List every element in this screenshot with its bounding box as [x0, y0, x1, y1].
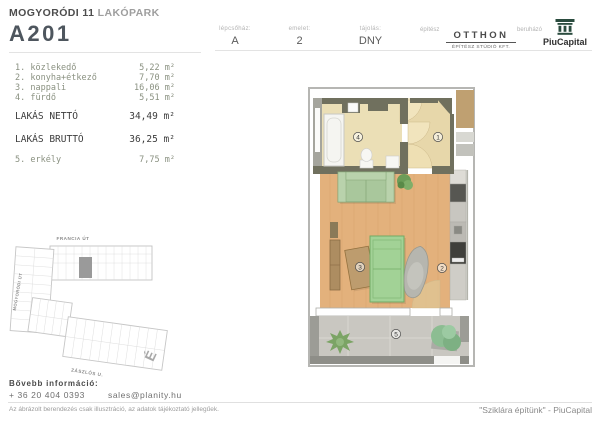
net-area-row: LAKÁS NETTÓ 34,49 m² — [15, 111, 175, 122]
net-area-value: 34,49 m² — [129, 111, 175, 122]
architect-logo-sub: ÉPÍTÉSZ STÚDIÓ KFT. — [446, 45, 516, 50]
gross-area-value: 36,25 m² — [129, 134, 175, 145]
room-name: 4. fürdő — [15, 93, 56, 103]
info-label: Bővebb információ: — [9, 379, 99, 388]
tall-wardrobe — [330, 240, 340, 290]
highlighted-unit — [79, 257, 92, 278]
staircase-label: lépcsőház: — [205, 26, 265, 32]
room-name: 5. erkély — [15, 155, 61, 165]
room-area: 5,51 m² — [139, 93, 175, 103]
room-name: 3. nappali — [15, 83, 66, 93]
bathtub — [324, 114, 344, 166]
room-list: 1. közlekedő 5,22 m² 2. konyha+étkező 7,… — [15, 63, 175, 103]
room-label-kitchen: 2 — [440, 265, 444, 272]
room-area: 5,22 m² — [139, 63, 175, 73]
disclaimer-text: Az ábrázolt berendezés csak illusztráció… — [9, 406, 219, 413]
architect-logo-name: OTTHON — [446, 30, 516, 43]
room-row: 1. közlekedő 5,22 m² — [15, 63, 175, 73]
meta-facing: tájolás: DNY — [338, 26, 403, 47]
sink — [386, 156, 399, 168]
site-building-north — [50, 246, 152, 280]
facing-value: DNY — [338, 35, 403, 47]
datasheet-page: MOGYORÓDI 11 LAKÓPARK A201 lépcsőház: A … — [0, 0, 600, 424]
area-totals: LAKÁS NETTÓ 34,49 m² LAKÁS BRUTTÓ 36,25 … — [15, 111, 175, 145]
email-address: sales@planity.hu — [108, 390, 182, 400]
contact-line: + 36 20 404 0393 sales@planity.hu — [9, 390, 182, 400]
net-area-label: LAKÁS NETTÓ — [15, 111, 78, 122]
meta-staircase: lépcsőház: A — [205, 26, 265, 47]
column-icon — [536, 19, 594, 36]
room-name: 2. konyha+étkező — [15, 73, 97, 83]
phone-number: + 36 20 404 0393 — [9, 390, 85, 400]
floor-plan-drawing: 1 2 3 4 5 — [302, 86, 478, 375]
room-area: 7,70 m² — [139, 73, 175, 83]
street-top-label: FRANCIA ÚT — [57, 235, 90, 241]
balcony-row: 5. erkély 7,75 m² — [15, 155, 175, 165]
architect-label: építész — [420, 27, 439, 33]
unit-id: A201 — [9, 21, 72, 47]
kitchen-counter — [450, 170, 466, 300]
toilet — [360, 149, 373, 169]
room-row: 4. fürdő 5,51 m² — [15, 93, 175, 103]
bed — [370, 236, 406, 304]
architect-logo: OTTHON ÉPÍTÉSZ STÚDIÓ KFT. — [446, 30, 516, 50]
facing-label: tájolás: — [338, 26, 403, 32]
floor-value: 2 — [272, 35, 327, 47]
staircase-value: A — [205, 35, 265, 47]
adjacent-structures — [456, 90, 474, 156]
project-name: MOGYORÓDI 11 — [9, 7, 94, 19]
media-cabinet — [330, 222, 338, 238]
room-row: 2. konyha+étkező 7,70 m² — [15, 73, 175, 83]
street-bottom-label: ZÁSZLÓS U. — [71, 366, 104, 378]
project-title: MOGYORÓDI 11 LAKÓPARK — [9, 7, 160, 19]
room-label-balcony: 5 — [394, 331, 398, 338]
floor-label: emelet: — [272, 26, 327, 32]
room-row: 3. nappali 16,06 m² — [15, 83, 175, 93]
sofa — [338, 172, 396, 204]
header-divider-left — [9, 52, 201, 53]
gross-area-row: LAKÁS BRUTTÓ 36,25 m² — [15, 134, 175, 145]
room-label-hall: 1 — [436, 134, 440, 141]
gross-area-label: LAKÁS BRUTTÓ — [15, 134, 84, 145]
company-slogan: "Sziklára építünk" - PiuCapital — [479, 405, 592, 415]
footer-divider — [8, 402, 592, 403]
header-divider-right — [215, 50, 592, 51]
room-label-living: 3 — [358, 264, 362, 271]
room-name: 1. közlekedő — [15, 63, 76, 73]
room-area: 16,06 m² — [134, 83, 175, 93]
site-plan-map: FRANCIA ÚT MOGYORÓDI ÚT ZÁ — [5, 230, 175, 390]
developer-logo: PiuCapital — [536, 19, 594, 47]
project-suffix: LAKÓPARK — [98, 7, 160, 19]
room-area: 7,75 m² — [139, 155, 175, 165]
developer-logo-name: PiuCapital — [536, 37, 594, 47]
room-label-bath: 4 — [356, 134, 360, 141]
meta-floor: emelet: 2 — [272, 26, 327, 47]
